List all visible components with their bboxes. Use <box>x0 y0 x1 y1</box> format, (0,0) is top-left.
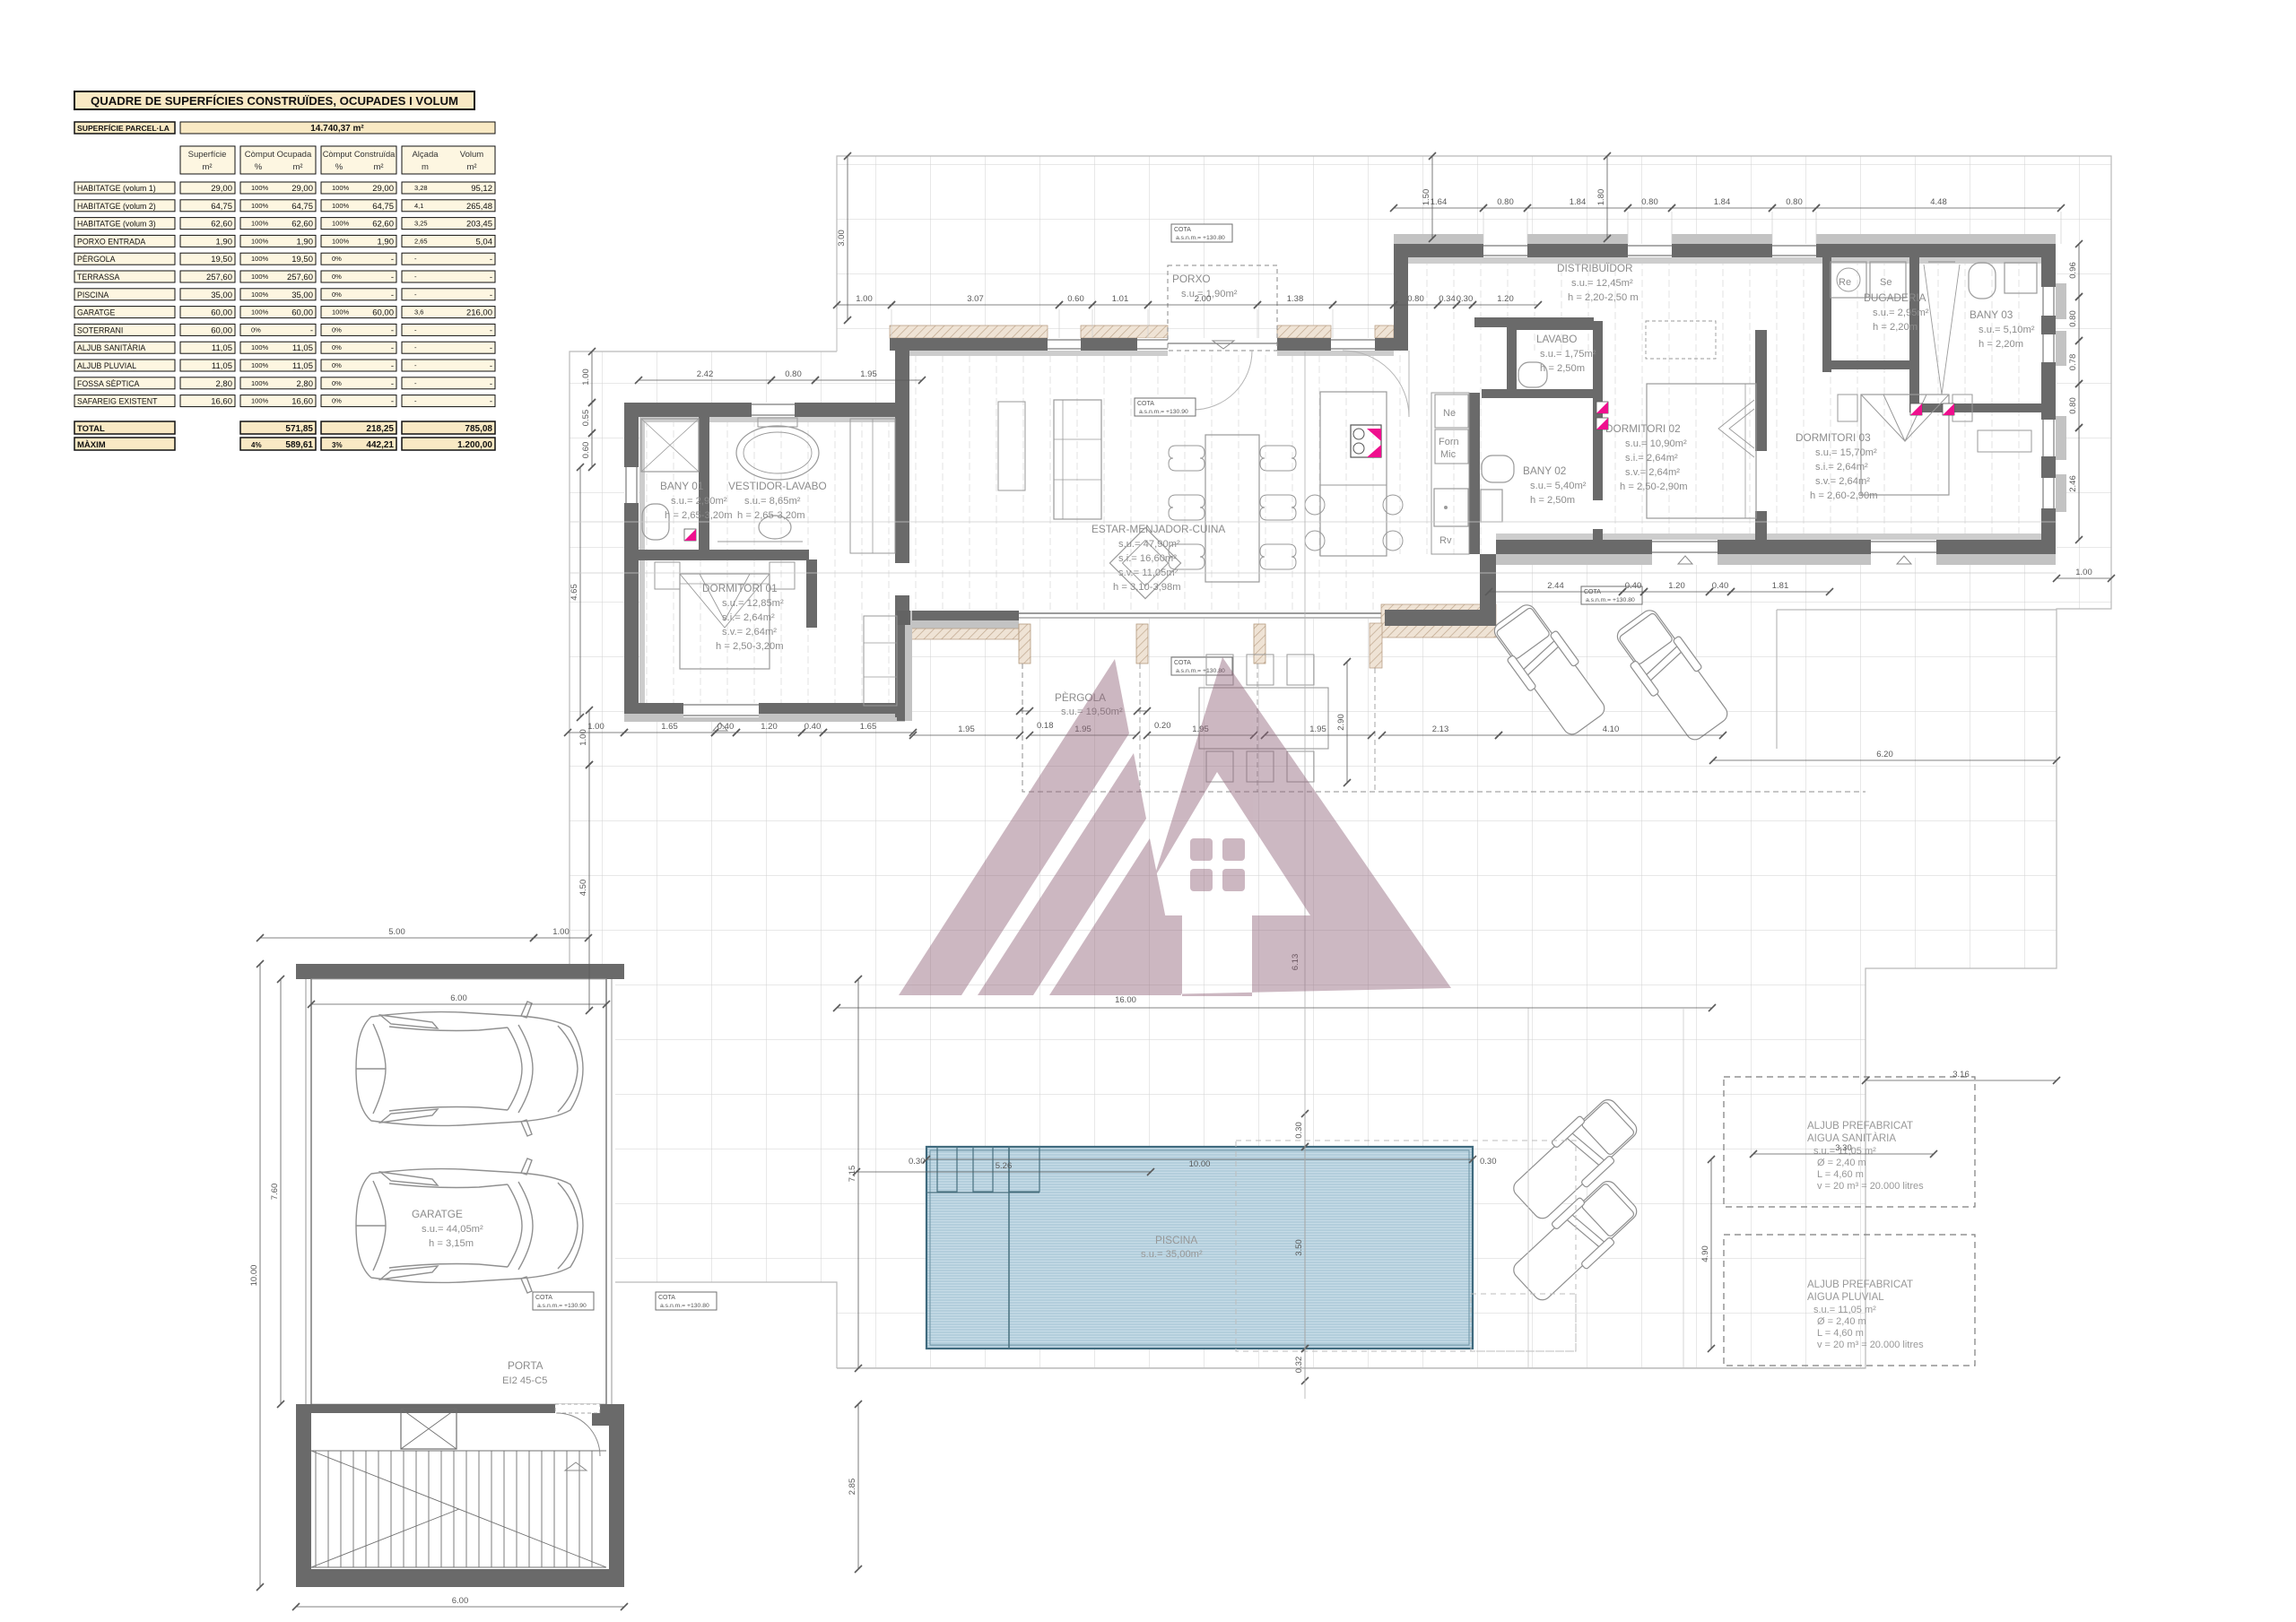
svg-text:0.40: 0.40 <box>1712 581 1729 591</box>
svg-text:4.48: 4.48 <box>1930 197 1947 207</box>
svg-text:64,75: 64,75 <box>211 202 232 212</box>
svg-text:0%: 0% <box>332 325 342 334</box>
svg-text:s.i.= 2,64m²: s.i.= 2,64m² <box>1815 462 1868 473</box>
svg-text:COTA: COTA <box>1174 227 1191 233</box>
svg-text:60,00: 60,00 <box>291 308 313 318</box>
svg-text:100%: 100% <box>251 397 269 405</box>
svg-text:1.200,00: 1.200,00 <box>457 440 492 450</box>
svg-text:1.20: 1.20 <box>1668 581 1685 591</box>
svg-text:1.65: 1.65 <box>860 722 877 732</box>
svg-text:BANY 02: BANY 02 <box>1523 464 1566 477</box>
svg-text:1.00: 1.00 <box>2075 568 2092 577</box>
svg-text:AIGUA PLUVIAL: AIGUA PLUVIAL <box>1807 1292 1884 1303</box>
svg-text:BANY 01: BANY 01 <box>660 480 703 492</box>
svg-text:2,80: 2,80 <box>297 379 314 389</box>
svg-text:ESTAR-MENJADOR-CUINA: ESTAR-MENJADOR-CUINA <box>1091 523 1225 535</box>
svg-text:s.u.= 12,85m²: s.u.= 12,85m² <box>722 598 784 609</box>
svg-text:1.80: 1.80 <box>1596 189 1606 206</box>
svg-text:4.65: 4.65 <box>570 584 579 601</box>
svg-text:s.u.= 44,05m²: s.u.= 44,05m² <box>422 1224 483 1235</box>
svg-text:Superfície: Superfície <box>188 150 227 160</box>
svg-text:60,00: 60,00 <box>211 308 232 318</box>
svg-text:0.40: 0.40 <box>1625 581 1642 591</box>
svg-text:16.00: 16.00 <box>1115 995 1136 1005</box>
svg-text:571,85: 571,85 <box>285 424 313 434</box>
svg-text:0.40: 0.40 <box>717 722 735 732</box>
svg-text:3,28: 3,28 <box>414 184 428 192</box>
svg-text:0.96: 0.96 <box>2068 262 2078 279</box>
svg-text:1,90: 1,90 <box>297 237 314 247</box>
svg-text:Rv: Rv <box>1439 535 1452 546</box>
svg-text:-: - <box>490 291 492 300</box>
svg-text:35,00: 35,00 <box>291 291 313 300</box>
svg-text:DORMITORI 02: DORMITORI 02 <box>1605 422 1681 435</box>
svg-text:-: - <box>391 397 394 407</box>
svg-text:1.20: 1.20 <box>1497 294 1514 304</box>
svg-text:Se: Se <box>1880 277 1892 288</box>
svg-text:2.13: 2.13 <box>1432 724 1449 734</box>
svg-text:100%: 100% <box>332 202 350 210</box>
svg-text:a.s.n.m.= +130.80: a.s.n.m.= +130.80 <box>660 1303 709 1309</box>
svg-text:GARATGE: GARATGE <box>77 308 115 317</box>
svg-text:a.s.n.m.= +130.80: a.s.n.m.= +130.80 <box>1586 597 1635 603</box>
svg-text:2.42: 2.42 <box>697 369 714 379</box>
svg-text:0.18: 0.18 <box>1037 721 1054 731</box>
svg-text:DISTRIBUÏDOR: DISTRIBUÏDOR <box>1557 262 1633 274</box>
svg-text:100%: 100% <box>251 237 269 245</box>
svg-text:COTA: COTA <box>1137 401 1154 407</box>
svg-text:s.u.= 10,90m²: s.u.= 10,90m² <box>1625 438 1687 449</box>
svg-text:29,00: 29,00 <box>211 184 232 194</box>
svg-text:100%: 100% <box>251 291 269 299</box>
svg-text:10.00: 10.00 <box>1189 1159 1211 1169</box>
svg-text:h = 2,50m: h = 2,50m <box>1530 495 1575 506</box>
svg-text:0%: 0% <box>332 397 342 405</box>
svg-text:COTA: COTA <box>535 1295 552 1301</box>
svg-text:s.u.= 8,65m²: s.u.= 8,65m² <box>744 496 801 507</box>
svg-text:-: - <box>391 325 394 335</box>
svg-text:100%: 100% <box>332 220 350 228</box>
svg-text:HABITATGE (volum 2): HABITATGE (volum 2) <box>77 202 156 211</box>
svg-text:PORXO ENTRADA: PORXO ENTRADA <box>77 237 145 246</box>
svg-text:95,12: 95,12 <box>471 184 492 194</box>
svg-text:BANY 03: BANY 03 <box>1970 308 2013 321</box>
svg-text:0.80: 0.80 <box>1407 294 1424 304</box>
svg-text:218,25: 218,25 <box>366 424 394 434</box>
svg-text:64,75: 64,75 <box>372 202 394 212</box>
svg-text:m²: m² <box>373 162 383 172</box>
svg-text:0.80: 0.80 <box>1641 197 1658 207</box>
svg-text:s.v.= 2,64m²: s.v.= 2,64m² <box>1815 476 1870 487</box>
svg-text:1.84: 1.84 <box>1714 197 1731 207</box>
svg-text:SUPERFÍCIE PARCEL·LA: SUPERFÍCIE PARCEL·LA <box>77 124 170 133</box>
svg-text:1.20: 1.20 <box>761 722 778 732</box>
svg-text:4.50: 4.50 <box>578 880 588 897</box>
svg-text:2.90: 2.90 <box>1336 714 1346 731</box>
svg-text:HABITATGE (volum 3): HABITATGE (volum 3) <box>77 220 156 229</box>
svg-text:4%: 4% <box>251 441 262 449</box>
svg-text:100%: 100% <box>251 308 269 317</box>
svg-text:Forn: Forn <box>1439 437 1459 447</box>
svg-text:0%: 0% <box>332 379 342 387</box>
svg-text:3.30: 3.30 <box>1835 1143 1852 1153</box>
svg-text:h = 2,60-2,90m: h = 2,60-2,90m <box>1810 490 1878 501</box>
svg-text:2.46: 2.46 <box>2068 475 2078 492</box>
svg-text:2.00: 2.00 <box>1195 294 1212 304</box>
svg-text:-: - <box>391 379 394 389</box>
svg-text:1.50: 1.50 <box>1422 189 1431 206</box>
svg-text:100%: 100% <box>332 237 350 245</box>
svg-text:SOTERRANI: SOTERRANI <box>77 325 123 334</box>
svg-text:14.740,37 m²: 14.740,37 m² <box>310 124 364 134</box>
svg-text:6.00: 6.00 <box>452 1596 469 1606</box>
svg-text:QUADRE DE SUPERFÍCIES CONSTRUÏ: QUADRE DE SUPERFÍCIES CONSTRUÏDES, OCUPA… <box>91 94 458 108</box>
svg-text:h = 3,10-3,98m: h = 3,10-3,98m <box>1113 582 1181 593</box>
svg-text:19,50: 19,50 <box>291 255 313 265</box>
svg-text:LAVABO: LAVABO <box>1536 333 1577 345</box>
svg-text:v = 20 m³ = 20.000 litres: v = 20 m³ = 20.000 litres <box>1817 1181 1924 1192</box>
svg-text:PÈRGOLA: PÈRGOLA <box>77 255 116 264</box>
svg-text:16,60: 16,60 <box>291 397 313 407</box>
svg-text:0.80: 0.80 <box>1786 197 1803 207</box>
svg-text:785,08: 785,08 <box>465 424 492 434</box>
svg-text:5,04: 5,04 <box>476 237 493 247</box>
svg-text:h = 2,20-2,50 m: h = 2,20-2,50 m <box>1568 292 1639 303</box>
svg-text:-: - <box>391 361 394 371</box>
svg-text:DORMITORI 03: DORMITORI 03 <box>1796 431 1871 444</box>
svg-text:L = 4,60 m: L = 4,60 m <box>1817 1328 1864 1339</box>
svg-text:0%: 0% <box>251 325 261 334</box>
svg-text:-: - <box>490 325 492 335</box>
svg-text:0.30: 0.30 <box>1457 294 1474 304</box>
svg-text:0.40: 0.40 <box>804 722 822 732</box>
svg-text:GARATGE: GARATGE <box>412 1208 463 1220</box>
svg-text:589,61: 589,61 <box>285 440 313 450</box>
svg-text:3.50: 3.50 <box>1294 1239 1304 1256</box>
svg-text:100%: 100% <box>251 184 269 192</box>
svg-text:0.30: 0.30 <box>1480 1157 1497 1167</box>
svg-text:1.81: 1.81 <box>1772 581 1789 591</box>
svg-text:0.78: 0.78 <box>2068 354 2078 371</box>
svg-text:s.u.= 2,90m²: s.u.= 2,90m² <box>671 496 727 507</box>
svg-text:Mic: Mic <box>1440 449 1457 460</box>
svg-text:19,50: 19,50 <box>211 255 232 265</box>
svg-text:2,80: 2,80 <box>216 379 233 389</box>
svg-text:3%: 3% <box>332 441 343 449</box>
svg-text:60,00: 60,00 <box>372 308 394 318</box>
svg-text:Còmput Ocupada: Còmput Ocupada <box>245 150 312 160</box>
svg-text:COTA: COTA <box>658 1295 675 1301</box>
svg-text:-: - <box>391 291 394 300</box>
svg-text:PORTA: PORTA <box>508 1359 544 1372</box>
svg-text:265,48: 265,48 <box>466 202 492 212</box>
svg-text:m²: m² <box>202 162 212 172</box>
svg-text:TOTAL: TOTAL <box>77 424 105 434</box>
svg-text:1.38: 1.38 <box>1287 294 1304 304</box>
svg-text:203,45: 203,45 <box>466 220 492 230</box>
svg-text:Ø = 2,40 m: Ø = 2,40 m <box>1817 1316 1866 1327</box>
svg-text:PORXO: PORXO <box>1172 273 1211 285</box>
svg-text:1,90: 1,90 <box>216 237 233 247</box>
svg-text:L = 4,60 m: L = 4,60 m <box>1817 1169 1864 1180</box>
svg-text:4.10: 4.10 <box>1603 724 1620 734</box>
svg-text:100%: 100% <box>251 361 269 369</box>
svg-text:3.00: 3.00 <box>837 230 847 247</box>
svg-text:100%: 100% <box>251 220 269 228</box>
svg-text:100%: 100% <box>251 343 269 351</box>
svg-text:s.u.= 1,75m²: s.u.= 1,75m² <box>1540 349 1596 360</box>
svg-text:11,05: 11,05 <box>292 361 313 371</box>
svg-text:h = 2,65-3,20m: h = 2,65-3,20m <box>665 510 733 521</box>
svg-text:11,05: 11,05 <box>292 343 313 353</box>
svg-text:100%: 100% <box>251 273 269 281</box>
svg-text:a.s.n.m.= +130.90: a.s.n.m.= +130.90 <box>537 1303 587 1309</box>
svg-text:1.00: 1.00 <box>587 722 604 732</box>
svg-text:s.u.= 47,90m²: s.u.= 47,90m² <box>1118 539 1180 550</box>
svg-text:s.u.= 5,40m²: s.u.= 5,40m² <box>1530 481 1587 491</box>
svg-text:1.84: 1.84 <box>1570 197 1587 207</box>
svg-text:s.u.= 35,00m²: s.u.= 35,00m² <box>1141 1249 1203 1260</box>
svg-text:35,00: 35,00 <box>211 291 232 300</box>
svg-text:COTA: COTA <box>1584 589 1601 595</box>
svg-text:PISCINA: PISCINA <box>1155 1234 1197 1246</box>
svg-text:100%: 100% <box>251 255 269 263</box>
svg-text:1.95: 1.95 <box>958 724 975 734</box>
svg-text:1.00: 1.00 <box>552 927 570 937</box>
svg-text:v = 20 m³ = 20.000 litres: v = 20 m³ = 20.000 litres <box>1817 1340 1924 1350</box>
svg-text:DORMITORI 01: DORMITORI 01 <box>702 582 778 594</box>
svg-text:64,75: 64,75 <box>291 202 313 212</box>
svg-text:h = 2,50-2,90m: h = 2,50-2,90m <box>1620 481 1688 492</box>
svg-text:0.80: 0.80 <box>1497 197 1514 207</box>
svg-text:EI2 45-C5: EI2 45-C5 <box>502 1375 547 1386</box>
svg-text:2,65: 2,65 <box>414 237 428 245</box>
svg-text:0%: 0% <box>332 343 342 351</box>
svg-text:4.90: 4.90 <box>1700 1245 1710 1262</box>
svg-text:a.s.n.m.= +130.90: a.s.n.m.= +130.90 <box>1139 409 1188 415</box>
svg-text:FOSSA SÈPTICA: FOSSA SÈPTICA <box>77 379 140 388</box>
svg-text:0.60: 0.60 <box>1067 294 1084 304</box>
svg-text:COTA: COTA <box>1174 660 1191 666</box>
svg-text:MÀXIM: MÀXIM <box>77 440 106 450</box>
svg-text:1.65: 1.65 <box>661 722 678 732</box>
svg-text:PISCINA: PISCINA <box>77 291 109 299</box>
svg-text:0.32: 0.32 <box>1294 1357 1304 1374</box>
svg-text:s.u.= 15,70m²: s.u.= 15,70m² <box>1815 447 1877 458</box>
svg-text:29,00: 29,00 <box>291 184 313 194</box>
svg-text:h = 2,65-3,20m: h = 2,65-3,20m <box>737 510 805 521</box>
svg-text:-: - <box>490 379 492 389</box>
svg-text:-: - <box>391 255 394 265</box>
svg-text:s.u.= 12,45m²: s.u.= 12,45m² <box>1571 278 1633 289</box>
svg-text:100%: 100% <box>251 202 269 210</box>
svg-text:442,21: 442,21 <box>366 440 394 450</box>
svg-text:s.u.= 11,05 m²: s.u.= 11,05 m² <box>1813 1305 1876 1315</box>
svg-text:-: - <box>391 343 394 353</box>
svg-text:11,05: 11,05 <box>212 361 232 371</box>
svg-text:-: - <box>490 343 492 353</box>
svg-text:s.u.= 5,10m²: s.u.= 5,10m² <box>1979 325 2035 335</box>
svg-text:ALJUB SANITÀRIA: ALJUB SANITÀRIA <box>77 343 145 352</box>
svg-text:-: - <box>490 397 492 407</box>
svg-text:60,00: 60,00 <box>211 325 232 335</box>
svg-text:5.00: 5.00 <box>388 927 405 937</box>
svg-text:h = 2,20m: h = 2,20m <box>1873 322 1918 333</box>
svg-text:62,60: 62,60 <box>211 220 232 230</box>
svg-text:1.01: 1.01 <box>1112 294 1129 304</box>
svg-text:h = 2,20m: h = 2,20m <box>1979 339 2023 350</box>
svg-text:BUGADERIA: BUGADERIA <box>1864 291 1926 304</box>
svg-text:0.80: 0.80 <box>2068 397 2078 414</box>
svg-text:1.00: 1.00 <box>856 294 873 304</box>
svg-text:s.i.= 16,60m²: s.i.= 16,60m² <box>1118 553 1177 564</box>
svg-text:-: - <box>490 361 492 371</box>
svg-text:m²: m² <box>466 162 476 172</box>
svg-text:62,60: 62,60 <box>291 220 313 230</box>
svg-text:0.80: 0.80 <box>785 369 802 379</box>
svg-text:h = 2,50-3,20m: h = 2,50-3,20m <box>716 641 784 652</box>
svg-text:5.26: 5.26 <box>996 1161 1013 1171</box>
svg-text:Re: Re <box>1839 277 1851 288</box>
svg-text:3.16: 3.16 <box>1952 1070 1970 1080</box>
svg-text:0.30: 0.30 <box>909 1157 926 1167</box>
svg-text:62,60: 62,60 <box>372 220 394 230</box>
svg-text:0.34: 0.34 <box>1439 294 1456 304</box>
svg-text:257,60: 257,60 <box>287 273 313 282</box>
svg-text:3.07: 3.07 <box>967 294 984 304</box>
svg-text:6.00: 6.00 <box>450 993 467 1003</box>
svg-text:16,60: 16,60 <box>211 397 232 407</box>
svg-text:VESTIDOR-LAVABO: VESTIDOR-LAVABO <box>728 480 827 492</box>
svg-text:m²: m² <box>292 162 302 172</box>
svg-text:h = 3,15m: h = 3,15m <box>429 1238 474 1249</box>
svg-text:3,25: 3,25 <box>414 220 428 228</box>
svg-text:-: - <box>490 255 492 265</box>
svg-text:ALJUB PREFABRICAT: ALJUB PREFABRICAT <box>1807 1279 1913 1290</box>
svg-text:0%: 0% <box>332 361 342 369</box>
svg-text:4,1: 4,1 <box>414 202 423 210</box>
svg-text:Ne: Ne <box>1443 408 1456 419</box>
svg-text:257,60: 257,60 <box>206 273 232 282</box>
svg-text:1.00: 1.00 <box>581 369 591 386</box>
svg-text:0.55: 0.55 <box>581 410 591 427</box>
svg-text:3,6: 3,6 <box>414 308 423 317</box>
svg-text:1.95: 1.95 <box>1309 724 1326 734</box>
svg-text:1,90: 1,90 <box>378 237 395 247</box>
svg-text:100%: 100% <box>251 379 269 387</box>
svg-text:ALJUB PLUVIAL: ALJUB PLUVIAL <box>77 361 136 370</box>
svg-text:-: - <box>391 273 394 282</box>
svg-text:7.15: 7.15 <box>848 1166 857 1183</box>
svg-text:0%: 0% <box>332 291 342 299</box>
svg-text:10.00: 10.00 <box>249 1265 259 1287</box>
svg-text:2.85: 2.85 <box>848 1479 857 1496</box>
svg-text:Alçada: Alçada <box>412 150 439 160</box>
svg-text:100%: 100% <box>332 308 350 317</box>
svg-text:1.95: 1.95 <box>860 369 877 379</box>
svg-text:Ø = 2,40 m: Ø = 2,40 m <box>1817 1158 1866 1168</box>
svg-text:0.20: 0.20 <box>1154 721 1171 731</box>
svg-text:-: - <box>310 325 313 335</box>
svg-text:1.00: 1.00 <box>578 729 588 746</box>
svg-text:Còmput Construïda: Còmput Construïda <box>323 150 396 159</box>
svg-text:0%: 0% <box>332 255 342 263</box>
svg-text:0.60: 0.60 <box>581 442 591 459</box>
svg-text:s.v.= 2,64m²: s.v.= 2,64m² <box>1625 467 1680 478</box>
svg-text:s.i.= 2,64m²: s.i.= 2,64m² <box>722 612 775 623</box>
svg-text:6.20: 6.20 <box>1876 750 1893 759</box>
svg-text:-: - <box>490 273 492 282</box>
svg-text:%: % <box>335 162 344 172</box>
svg-text:m: m <box>422 162 429 172</box>
svg-text:s.u.= 2,95m²: s.u.= 2,95m² <box>1873 308 1929 318</box>
svg-text:7.60: 7.60 <box>270 1184 280 1201</box>
svg-text:s.i.= 2,64m²: s.i.= 2,64m² <box>1625 453 1678 464</box>
svg-text:SAFAREIG EXISTENT: SAFAREIG EXISTENT <box>77 397 158 406</box>
svg-text:%: % <box>255 162 263 172</box>
svg-text:Volum: Volum <box>460 150 483 160</box>
svg-text:HABITATGE (volum 1): HABITATGE (volum 1) <box>77 184 156 193</box>
svg-text:216,00: 216,00 <box>466 308 492 318</box>
svg-text:0.30: 0.30 <box>1294 1122 1304 1139</box>
svg-text:29,00: 29,00 <box>372 184 394 194</box>
svg-text:11,05: 11,05 <box>212 343 232 353</box>
svg-text:ALJUB PREFABRICAT: ALJUB PREFABRICAT <box>1807 1121 1913 1132</box>
svg-text:0%: 0% <box>332 273 342 281</box>
svg-text:1.64: 1.64 <box>1431 197 1448 207</box>
svg-text:0.80: 0.80 <box>2068 310 2078 327</box>
svg-text:s.v.= 2,64m²: s.v.= 2,64m² <box>722 627 777 638</box>
svg-text:2.44: 2.44 <box>1547 581 1564 591</box>
svg-text:100%: 100% <box>332 184 350 192</box>
svg-text:TERRASSA: TERRASSA <box>77 273 120 282</box>
svg-text:a.s.n.m.= +130.80: a.s.n.m.= +130.80 <box>1176 235 1225 241</box>
